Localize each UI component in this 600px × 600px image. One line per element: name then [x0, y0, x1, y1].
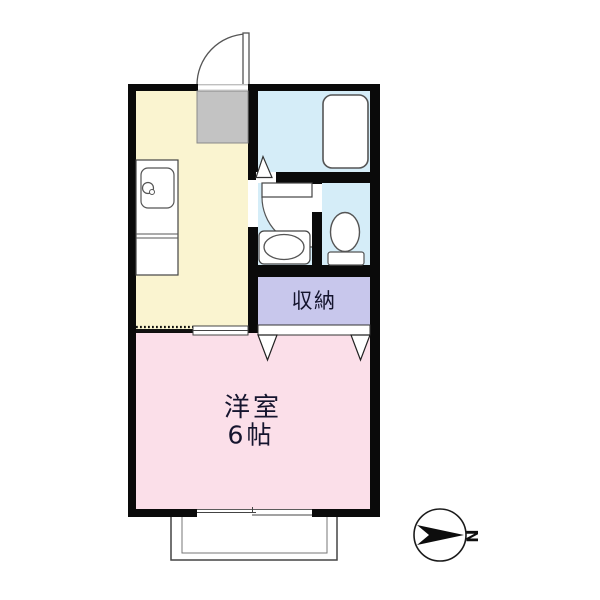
closet-door-panel	[258, 325, 370, 335]
bathtub	[323, 95, 368, 168]
bedroom-label: 洋室	[224, 393, 282, 423]
compass-north-label: N	[463, 529, 482, 542]
toilet-tank	[328, 252, 364, 265]
washbasin-bowl	[264, 235, 304, 260]
storage-label: 収納	[292, 289, 337, 313]
washroom-doorway-opening	[248, 180, 258, 227]
toilet-bowl	[331, 213, 360, 252]
genkan-entry-floor	[197, 91, 248, 143]
floorplan-page: 収納 洋室 6帖 N	[0, 0, 600, 600]
floorplan-svg: 収納 洋室 6帖 N	[0, 0, 600, 600]
toilet-doorway-opening	[312, 184, 322, 212]
washroom-door-leaf	[262, 183, 312, 197]
faucet-knob-icon	[150, 190, 155, 195]
entrance-door-leaf	[243, 33, 249, 85]
bedroom-size-label: 6帖	[228, 421, 275, 450]
kitchen-boundary-hatch	[136, 329, 193, 333]
